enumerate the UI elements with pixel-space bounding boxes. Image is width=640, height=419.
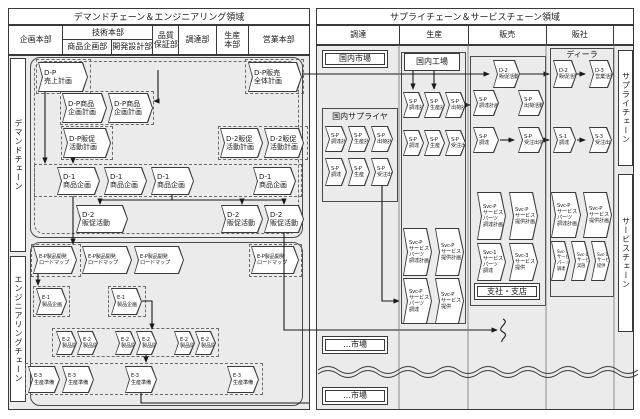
svcp-service-parts-procurement-factory: Svc-Pサービスパーツ調達: [403, 278, 432, 324]
sp-procurement-sales: S-P調達: [473, 127, 499, 153]
column-header-spacer: [613, 26, 633, 44]
e2-product-dev-4: E-2製品開発: [136, 331, 157, 355]
d3-sales-activity-distributor: D-3営業活動: [589, 60, 613, 88]
other-market-1: …市場: [322, 336, 388, 354]
dealer-label: ディーラ: [560, 49, 604, 60]
column-header-tech-hq: 技術本部: [63, 26, 152, 40]
svcp-service-parts-procurement-plan-sales: Svc-Pサービスパーツ調達計画: [477, 192, 506, 240]
domestic-factory: 国内工場: [404, 53, 460, 71]
d1-product-planning-2: D-1商品企画: [104, 167, 147, 195]
branch-offices: 支社・支店: [474, 283, 540, 300]
right-header-row: 調達 生産 販売 販社: [316, 25, 634, 45]
d2-promotion-activity-2: D-2販促活動: [221, 205, 263, 233]
ep-roadmap-4: E-P製品開発ロードマップ: [251, 246, 299, 274]
column-header-production: 生産: [399, 26, 468, 44]
sp-shipping-plan-supplier: S-P出荷計画: [371, 126, 393, 152]
sp-order-shipping-supplier: S-P受注出荷: [371, 158, 393, 186]
e2-product-dev-5: E-2製品開発: [174, 331, 195, 355]
svc3-service-provision-sales: Svc-3サービス提供: [509, 243, 538, 281]
e3-production-prep-3: E-3生産準備: [125, 366, 157, 393]
d2-promotion-activity-distributor: D-2販促活動: [553, 60, 577, 88]
d2-promotion-activity-sales: D-2販促活動: [493, 60, 520, 88]
sp-production-supplier: S-P生産: [348, 158, 370, 186]
left-header-row: 企画本部 技術本部 商品企画部 開発設計部 品質 保証部 調達部 生産 本部 営…: [8, 25, 310, 55]
e3-production-prep-2: E-3生産準備: [62, 366, 94, 393]
domestic-market: 国内市場: [322, 50, 388, 68]
sp-procurement-plan-sales: S-P調達計画: [473, 90, 499, 116]
svcp-service-parts-procurement-plan-distributor: Svc-Pサービスパーツ調達計画: [551, 192, 581, 238]
sp-procurement-plan-supplier: S-P調達計画: [325, 126, 347, 152]
e1-product-plan-2: E-1製品企画: [111, 288, 142, 315]
sp-production-plan-factory: S-P生産計画: [424, 92, 445, 118]
svcp-service-provision-factory: Svc-Pサービス提供: [435, 278, 464, 324]
d1-product-planning-4: D-1商品企画: [253, 167, 296, 195]
column-header-planning-hq: 企画本部: [9, 26, 62, 54]
column-header-tech-hq-group: 技術本部 商品企画部 開発設計部: [62, 26, 152, 54]
domestic-supplier-label: 国内サプライヤ: [324, 110, 396, 123]
column-header-production-hq: 生産 本部: [216, 26, 248, 54]
left-region-title: デマンドチェーン＆エンジニアリング領域: [8, 8, 310, 25]
svc1-service-parts-procurement-sales: Svc-1サービスパーツ調達: [477, 243, 506, 281]
e2-product-dev-3: E-2製品開発: [115, 331, 136, 355]
lane-label-supply-chain: サプライチェーン: [618, 50, 633, 166]
e3-production-prep-1: E-3生産準備: [28, 366, 60, 393]
column-header-sales-hq: 営業本部: [248, 26, 309, 54]
column-header-procurement-dept: 調達部: [178, 26, 216, 54]
sp-shipping-activity-sales: S-P出荷活動: [518, 90, 544, 116]
svc1-service-provision-distributor: Svc-1サービス提供: [591, 241, 610, 281]
column-header-distributor: 販社: [546, 26, 614, 44]
lane-label-engineering-chain: エンジニアリングチェーン: [10, 256, 26, 402]
e2-product-dev-1: E-2製品開発: [56, 331, 77, 355]
dp-promotion-plan: D-P販促活動計画: [63, 128, 111, 158]
ep-roadmap-3: E-P製品開発ロードマップ: [134, 246, 184, 274]
svcp-service-provision-plan-sales: Svc-Pサービス提供計画: [509, 192, 538, 240]
d2-promotion-plan-2: D-2販促活動計画: [264, 128, 304, 158]
dp-product-plan-1: D-P商品企画計画: [62, 93, 107, 123]
sp-production-factory: S-P生産: [424, 130, 445, 156]
d1-product-planning-1: D-1商品企画: [57, 167, 100, 195]
svcp-service-parts-procurement-plan-factory: Svc-Pサービスパーツ調達計画: [403, 228, 432, 276]
column-header-product-planning-dept: 商品企画部: [63, 40, 110, 54]
column-header-procurement: 調達: [317, 26, 399, 44]
d2-promotion-plan-1: D-2販促活動計画: [220, 128, 263, 158]
ep-roadmap-2: E-P製品開発ロードマップ: [82, 246, 132, 274]
e2-product-dev-2: E-2製品開発: [77, 331, 98, 355]
dp-sales-plan: D-P売上計画: [38, 62, 88, 92]
lane-label-demand-chain: デマンドチェーン: [10, 58, 26, 252]
e3-production-prep-4: E-3生産準備: [227, 366, 259, 393]
e2-product-dev-6: E-2製品開発: [195, 331, 216, 355]
sp-shipping-plan-factory: S-P出荷計画: [445, 92, 466, 118]
d2-promotion-activity-1: D-2販促活動: [76, 205, 128, 233]
sp-order-shipping-factory: S-P受注出荷: [445, 130, 466, 156]
svcp-service-provision-plan-factory: Svc-Pサービス提供計画: [435, 228, 464, 276]
d2-promotion-activity-3: D-2販促活動: [264, 205, 304, 233]
sp-order-shipping-sales: S-P受注出荷: [518, 127, 544, 153]
lane-label-service-chain: サービスチェーン: [618, 174, 633, 332]
sp-procurement-plan-factory: S-P調達計画: [403, 92, 424, 118]
ep-roadmap-1: E-P製品開発ロードマップ: [33, 246, 77, 274]
right-region-title: サプライチェーン＆サービスチェーン領域: [316, 8, 634, 25]
column-header-sales: 販売: [468, 26, 546, 44]
other-market-2: …市場: [322, 387, 388, 405]
svcp-service-provision-plan-distributor: Svc-Pサービス提供計画: [583, 192, 612, 238]
svc1-service-parts-procurement-distributor: Svc-1サービスパーツ調達: [551, 241, 570, 281]
dp-product-plan-2: D-P商品企画計画: [108, 93, 153, 123]
e1-product-plan-1: E-1製品企画: [36, 288, 67, 315]
d1-product-planning-3: D-1商品企画: [151, 167, 194, 195]
sp-production-plan-supplier: S-P生産計画: [348, 126, 370, 152]
dp-overall-sales-plan: D-P販売全体計画: [248, 62, 302, 92]
sp-procurement-supplier: S-P調達: [325, 158, 347, 186]
diagram-canvas: デマンドチェーン＆エンジニアリング領域 企画本部 技術本部 商品企画部 開発設計…: [0, 0, 640, 419]
column-header-dev-design-dept: 開発設計部: [111, 40, 153, 54]
s3-order-shipping-distributor: S-3受注出荷: [589, 127, 612, 153]
sp-procurement-factory: S-P調達: [403, 130, 424, 156]
s1-procurement-distributor: S-1調達: [553, 127, 576, 153]
svc1-service-implementation-distributor: Svc-1サービス実施: [571, 241, 590, 281]
column-header-qa-dept: 品質 保証部: [152, 26, 178, 54]
